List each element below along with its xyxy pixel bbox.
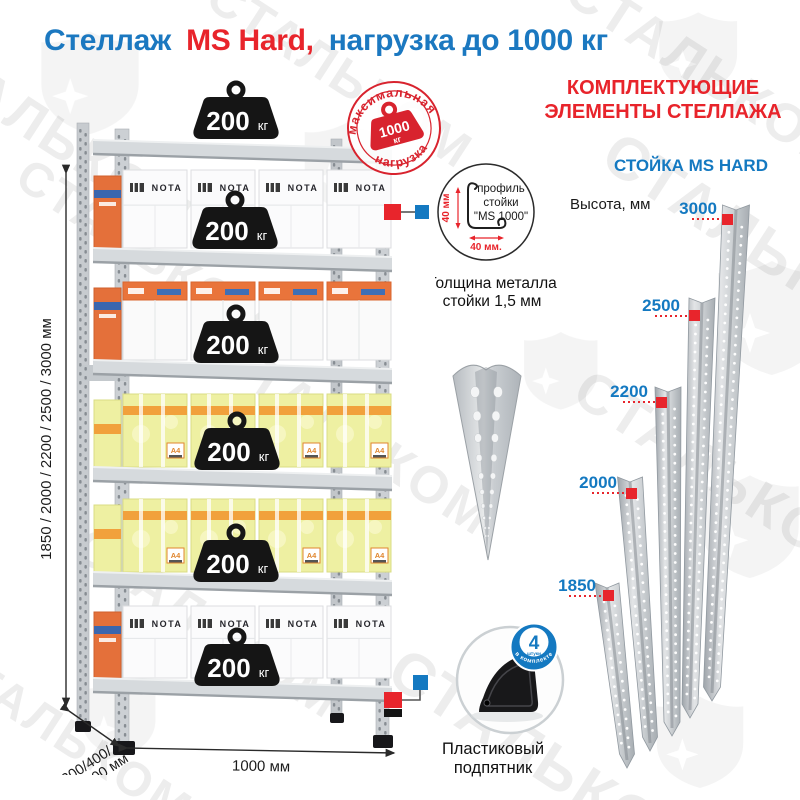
components-header: КОМПЛЕКТУЮЩИЕ ЭЛЕМЕНТЫ СТЕЛЛАЖА bbox=[543, 76, 783, 125]
paper-size-label: A4 bbox=[375, 446, 385, 455]
weight-unit: кг bbox=[258, 561, 269, 576]
weight-value: 200 bbox=[205, 216, 248, 246]
paper-size-label: A4 bbox=[171, 446, 181, 455]
post-height-label: 1850 bbox=[558, 576, 596, 595]
box-brand-label: NOTA bbox=[356, 183, 387, 193]
infographic-page: СТАЛЬКОМ СТАЛЬКОМ СТАЛЬКОМ СТАЛЬКОМ СТАЛ… bbox=[0, 0, 800, 800]
post-item: 1850 bbox=[558, 576, 634, 768]
box-brand-label: NOTA bbox=[152, 619, 183, 629]
box-brand-label: NOTA bbox=[288, 183, 319, 193]
box-brand-label: NOTA bbox=[356, 619, 387, 629]
paper-size-label: A4 bbox=[171, 551, 181, 560]
post-profile-diagram: 40 мм 40 мм. профиль стойки "MS 1000" bbox=[438, 164, 534, 260]
weight-unit: кг bbox=[258, 342, 269, 357]
box-brand-label: NOTA bbox=[288, 619, 319, 629]
foot-caption-line2: подпятник bbox=[454, 759, 533, 777]
width-dimension-label: 1000 мм bbox=[232, 757, 290, 775]
title-part-2: MS Hard, bbox=[186, 24, 314, 57]
title-part-3: нагрузка до 1000 кг bbox=[329, 24, 608, 57]
weight-value: 200 bbox=[206, 330, 249, 360]
weight-unit: кг bbox=[259, 449, 270, 464]
profile-dim-horizontal: 40 мм. bbox=[470, 242, 502, 253]
page-title: Стеллаж MS Hard, нагрузка до 1000 кг bbox=[44, 24, 608, 58]
post-height-label: 3000 bbox=[679, 199, 717, 218]
weight-value: 200 bbox=[207, 437, 250, 467]
weight-unit: кг bbox=[258, 118, 269, 133]
post-perspective-view bbox=[453, 365, 521, 560]
profile-dim-vertical: 40 мм bbox=[441, 194, 452, 223]
weight-badge: 200кг bbox=[193, 83, 278, 139]
weight-unit: кг bbox=[259, 665, 270, 680]
components-header-line1: КОМПЛЕКТУЮЩИЕ bbox=[543, 76, 783, 100]
thickness-caption-line1: Толщина металла bbox=[435, 275, 557, 292]
weight-value: 200 bbox=[206, 106, 249, 136]
plastic-foot-diagram: 4 штуки в комплекте bbox=[457, 624, 563, 734]
profile-label-line1: профиль bbox=[477, 183, 525, 195]
post-height-label: 2000 bbox=[579, 473, 617, 492]
post-height-label: 2500 bbox=[642, 296, 680, 315]
weight-value: 200 bbox=[206, 549, 249, 579]
height-dimension-label: 1850 / 2000 / 2200 / 2500 / 3000 мм bbox=[38, 318, 55, 560]
post-height-label: 2200 bbox=[610, 382, 648, 401]
profile-label-line2: стойки bbox=[483, 197, 518, 209]
box-brand-label: NOTA bbox=[152, 183, 183, 193]
weight-value: 200 bbox=[207, 653, 250, 683]
title-part-1: Стеллаж bbox=[44, 24, 171, 57]
post-lineup: 30002500220020001850 bbox=[555, 175, 800, 800]
width-dimension-line bbox=[127, 748, 394, 753]
foot-caption-line1: Пластиковый bbox=[442, 740, 544, 758]
components-header-line2: ЭЛЕМЕНТЫ СТЕЛЛАЖА bbox=[543, 100, 783, 124]
paper-size-label: A4 bbox=[375, 551, 385, 560]
thickness-caption-line2: стойки 1,5 мм bbox=[443, 293, 542, 310]
paper-size-label: A4 bbox=[307, 551, 317, 560]
weight-unit: кг bbox=[257, 228, 268, 243]
quantity-badge: 4 штуки в комплекте bbox=[511, 624, 558, 671]
paper-size-label: A4 bbox=[307, 446, 317, 455]
foot-callout-connector bbox=[384, 675, 428, 717]
profile-label-line3: "MS 1000" bbox=[474, 211, 528, 223]
shelf-illustration: NOTANOTANOTANOTAA4A4A4A4A4A4A4A4NOTANOTA… bbox=[15, 65, 455, 775]
box-brand-label: NOTA bbox=[220, 619, 251, 629]
profile-callout-connector bbox=[384, 204, 429, 220]
badge-unit: штуки bbox=[527, 651, 541, 656]
